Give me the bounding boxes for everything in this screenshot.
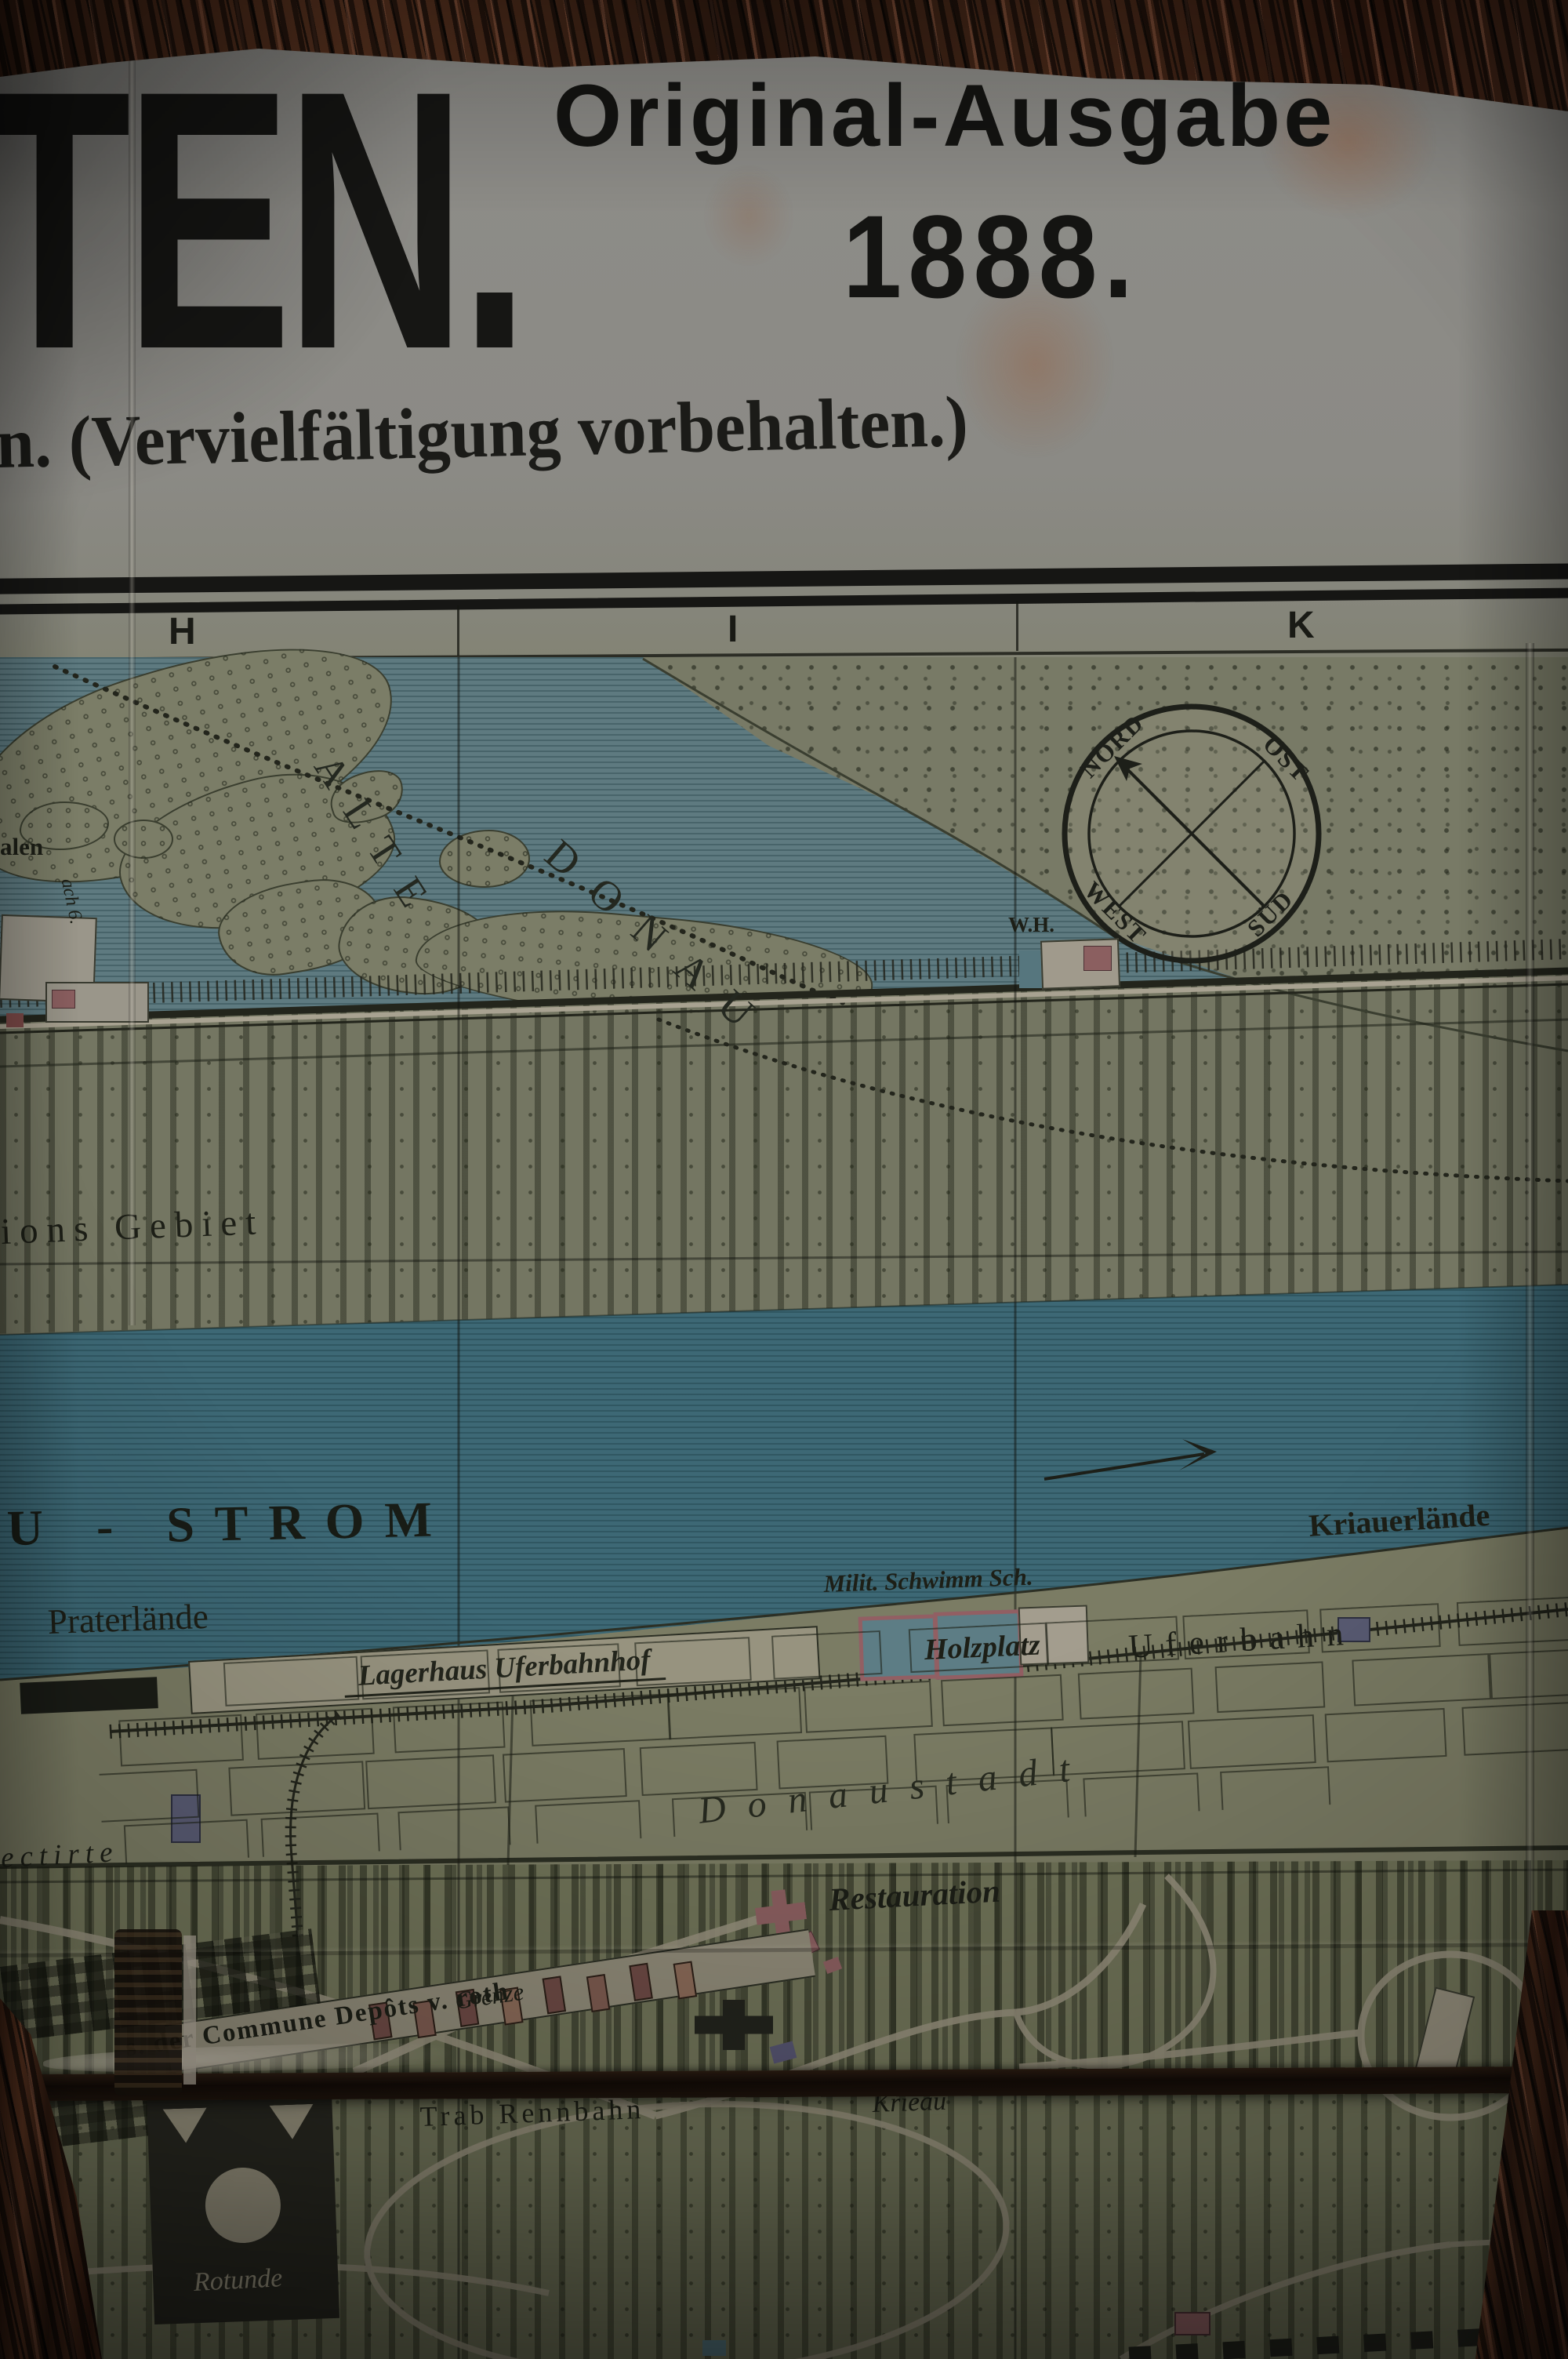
wh-label: W.H. [1008, 913, 1054, 937]
depot-building [586, 1974, 611, 2012]
depot-building [543, 1976, 567, 2014]
depot-building [673, 1961, 698, 1999]
praterlaende-label: Praterlände [47, 1596, 209, 1642]
city-block [666, 1687, 802, 1739]
city-block [1215, 1661, 1326, 1713]
city-block [771, 1630, 883, 1680]
rotunde-wing-cut [270, 2104, 315, 2140]
tree-square [1129, 2346, 1152, 2359]
building-red [6, 1013, 24, 1027]
rotunde-courtyard [204, 2166, 281, 2244]
saeulen-label-fragment: alen [0, 833, 43, 861]
fold-knot-crease [114, 1929, 182, 2095]
city-block [804, 1681, 933, 1733]
wh-building-pink [1083, 946, 1112, 971]
wh-water-inlet [1019, 951, 1043, 988]
city-block [941, 1674, 1064, 1726]
rotunde-label: Rotunde [193, 2263, 283, 2298]
city-block [530, 1693, 672, 1747]
city-block [94, 1769, 199, 1823]
donau-strom-label: U - STROM [6, 1490, 453, 1558]
tree-square [1176, 2343, 1199, 2359]
city-block [124, 1819, 250, 1865]
city-block [503, 1748, 627, 1803]
tree-square [1457, 2328, 1480, 2346]
city-block [118, 1714, 244, 1767]
holzplatz-label: Holzplatz [924, 1628, 1041, 1667]
tree-square [1316, 2336, 1339, 2354]
city-block [1325, 1708, 1447, 1762]
city-block [1352, 1653, 1491, 1706]
building-pink [1174, 2312, 1210, 2335]
city-block [256, 1708, 375, 1760]
tree-square [1269, 2339, 1292, 2357]
city-block [393, 1702, 506, 1754]
tree-square [1410, 2331, 1433, 2349]
city-block [1188, 1714, 1316, 1769]
city-block [634, 1637, 752, 1686]
city-block [223, 1656, 360, 1707]
depot-building [629, 1963, 653, 2001]
vertical-crease-right [1526, 643, 1534, 2102]
tree-square [1363, 2334, 1386, 2352]
building-pink [52, 990, 75, 1009]
vertical-crease-left [129, 55, 136, 1325]
tree-square [1222, 2341, 1245, 2359]
city-block [1078, 1668, 1195, 1720]
city-block [1457, 1597, 1568, 1646]
projectirte-label-fragment: ectirte [0, 1835, 120, 1875]
city-block [1461, 1702, 1568, 1756]
city-block [365, 1754, 496, 1809]
city-block [361, 1649, 491, 1699]
building-teal [702, 2340, 726, 2356]
map-paper-sheet: TEN. Original-Ausgabe 1888. n. (Vervielf… [0, 0, 1568, 2359]
map-photo: TEN. Original-Ausgabe 1888. n. (Vervielf… [0, 0, 1568, 2359]
fold-knot-highlight [183, 1936, 196, 2085]
city-block [228, 1761, 365, 1816]
city-block [497, 1643, 621, 1693]
rotunde-wing-cut [163, 2108, 209, 2144]
